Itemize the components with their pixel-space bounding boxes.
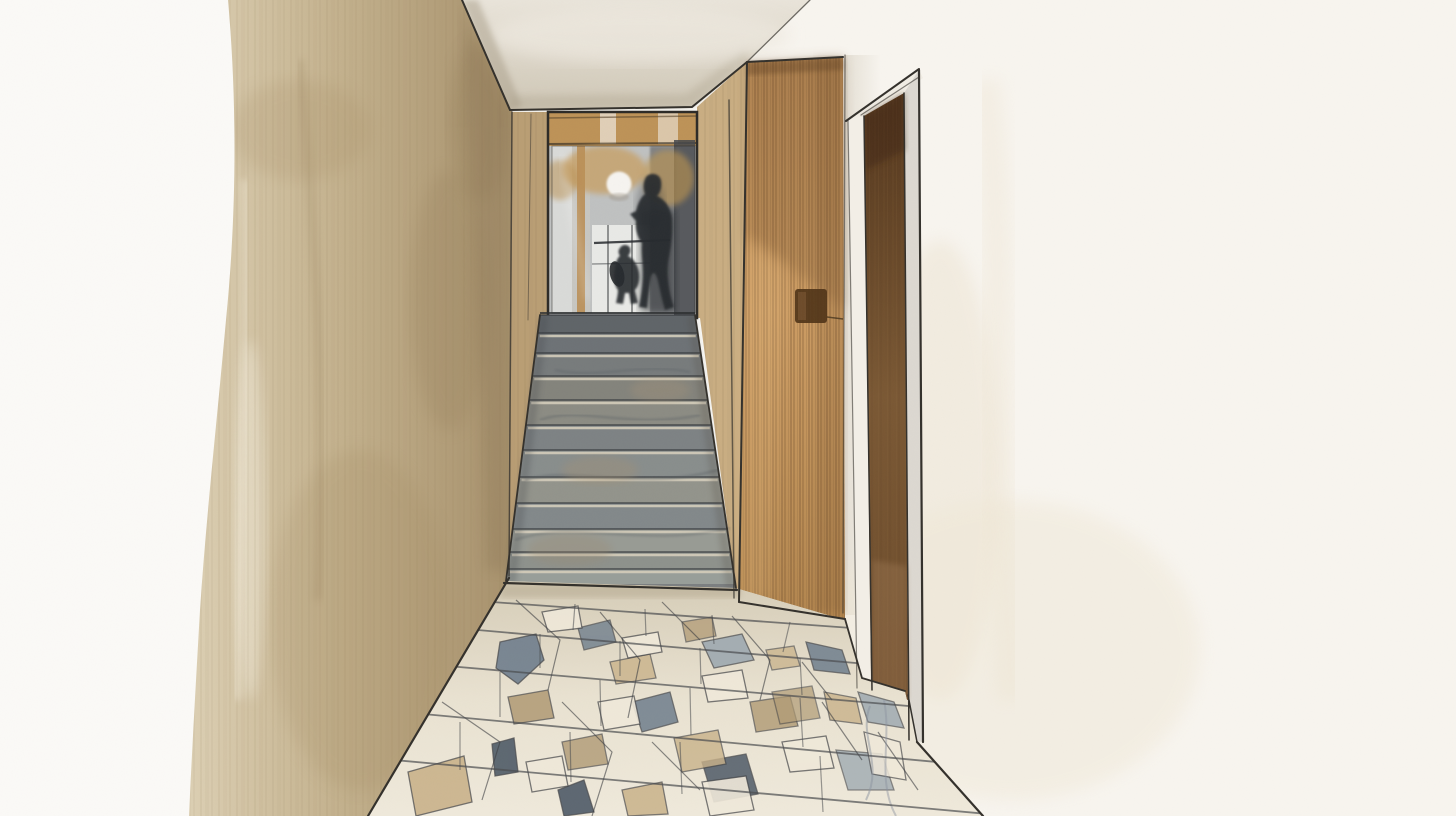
paper-grain-texture: [0, 0, 1456, 816]
scene-canvas: [0, 0, 1456, 816]
watercolor-hallway-illustration: [0, 0, 1456, 816]
